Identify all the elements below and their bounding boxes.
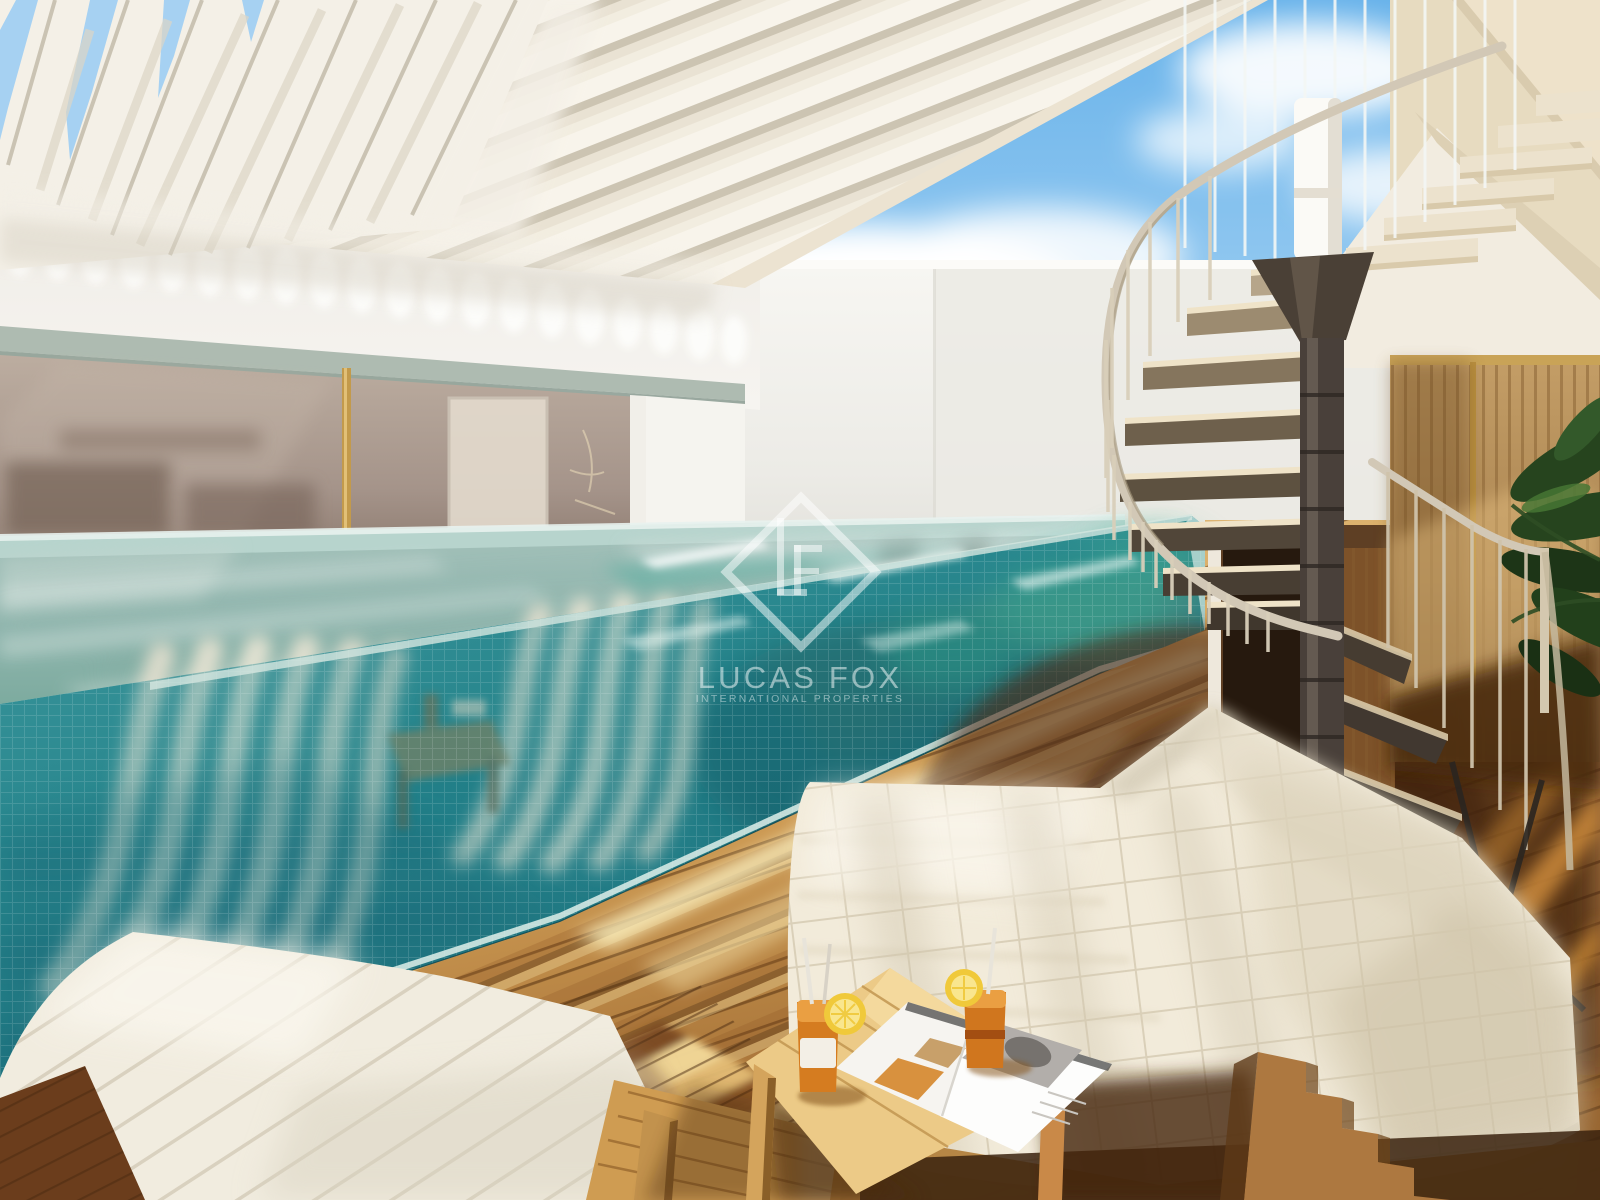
svg-text:LUCAS FOX: LUCAS FOX [698,660,903,695]
svg-text:INTERNATIONAL PROPERTIES: INTERNATIONAL PROPERTIES [696,693,904,705]
